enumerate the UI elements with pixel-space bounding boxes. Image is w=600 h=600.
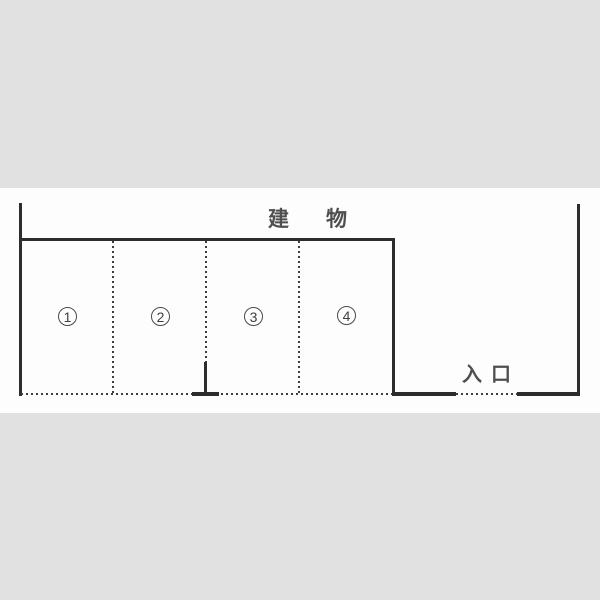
building-label: 建物 [268,209,384,230]
parking-divider-3 [298,241,300,393]
parking-divider-1 [112,241,114,393]
gate-post-stem [204,362,207,396]
building-outline-top [19,238,395,241]
curb-solid-right [517,392,578,396]
site-plan-screenshot: 建物 入口 1 2 3 4 [0,0,600,600]
parking-space-number-2: 2 [151,307,170,326]
gate-post-base [192,392,219,396]
parking-space-number-1: 1 [58,307,77,326]
parking-space-number-4: 4 [337,306,356,325]
boundary-wall-right [577,204,580,396]
curb-solid-left [392,392,456,396]
parking-space-number-3: 3 [244,307,263,326]
building-wall-right [392,238,395,396]
entrance-gap-dotted-line [456,393,517,395]
entrance-label: 入口 [462,365,520,385]
parking-divider-2 [205,241,207,362]
boundary-wall-left [19,203,22,396]
